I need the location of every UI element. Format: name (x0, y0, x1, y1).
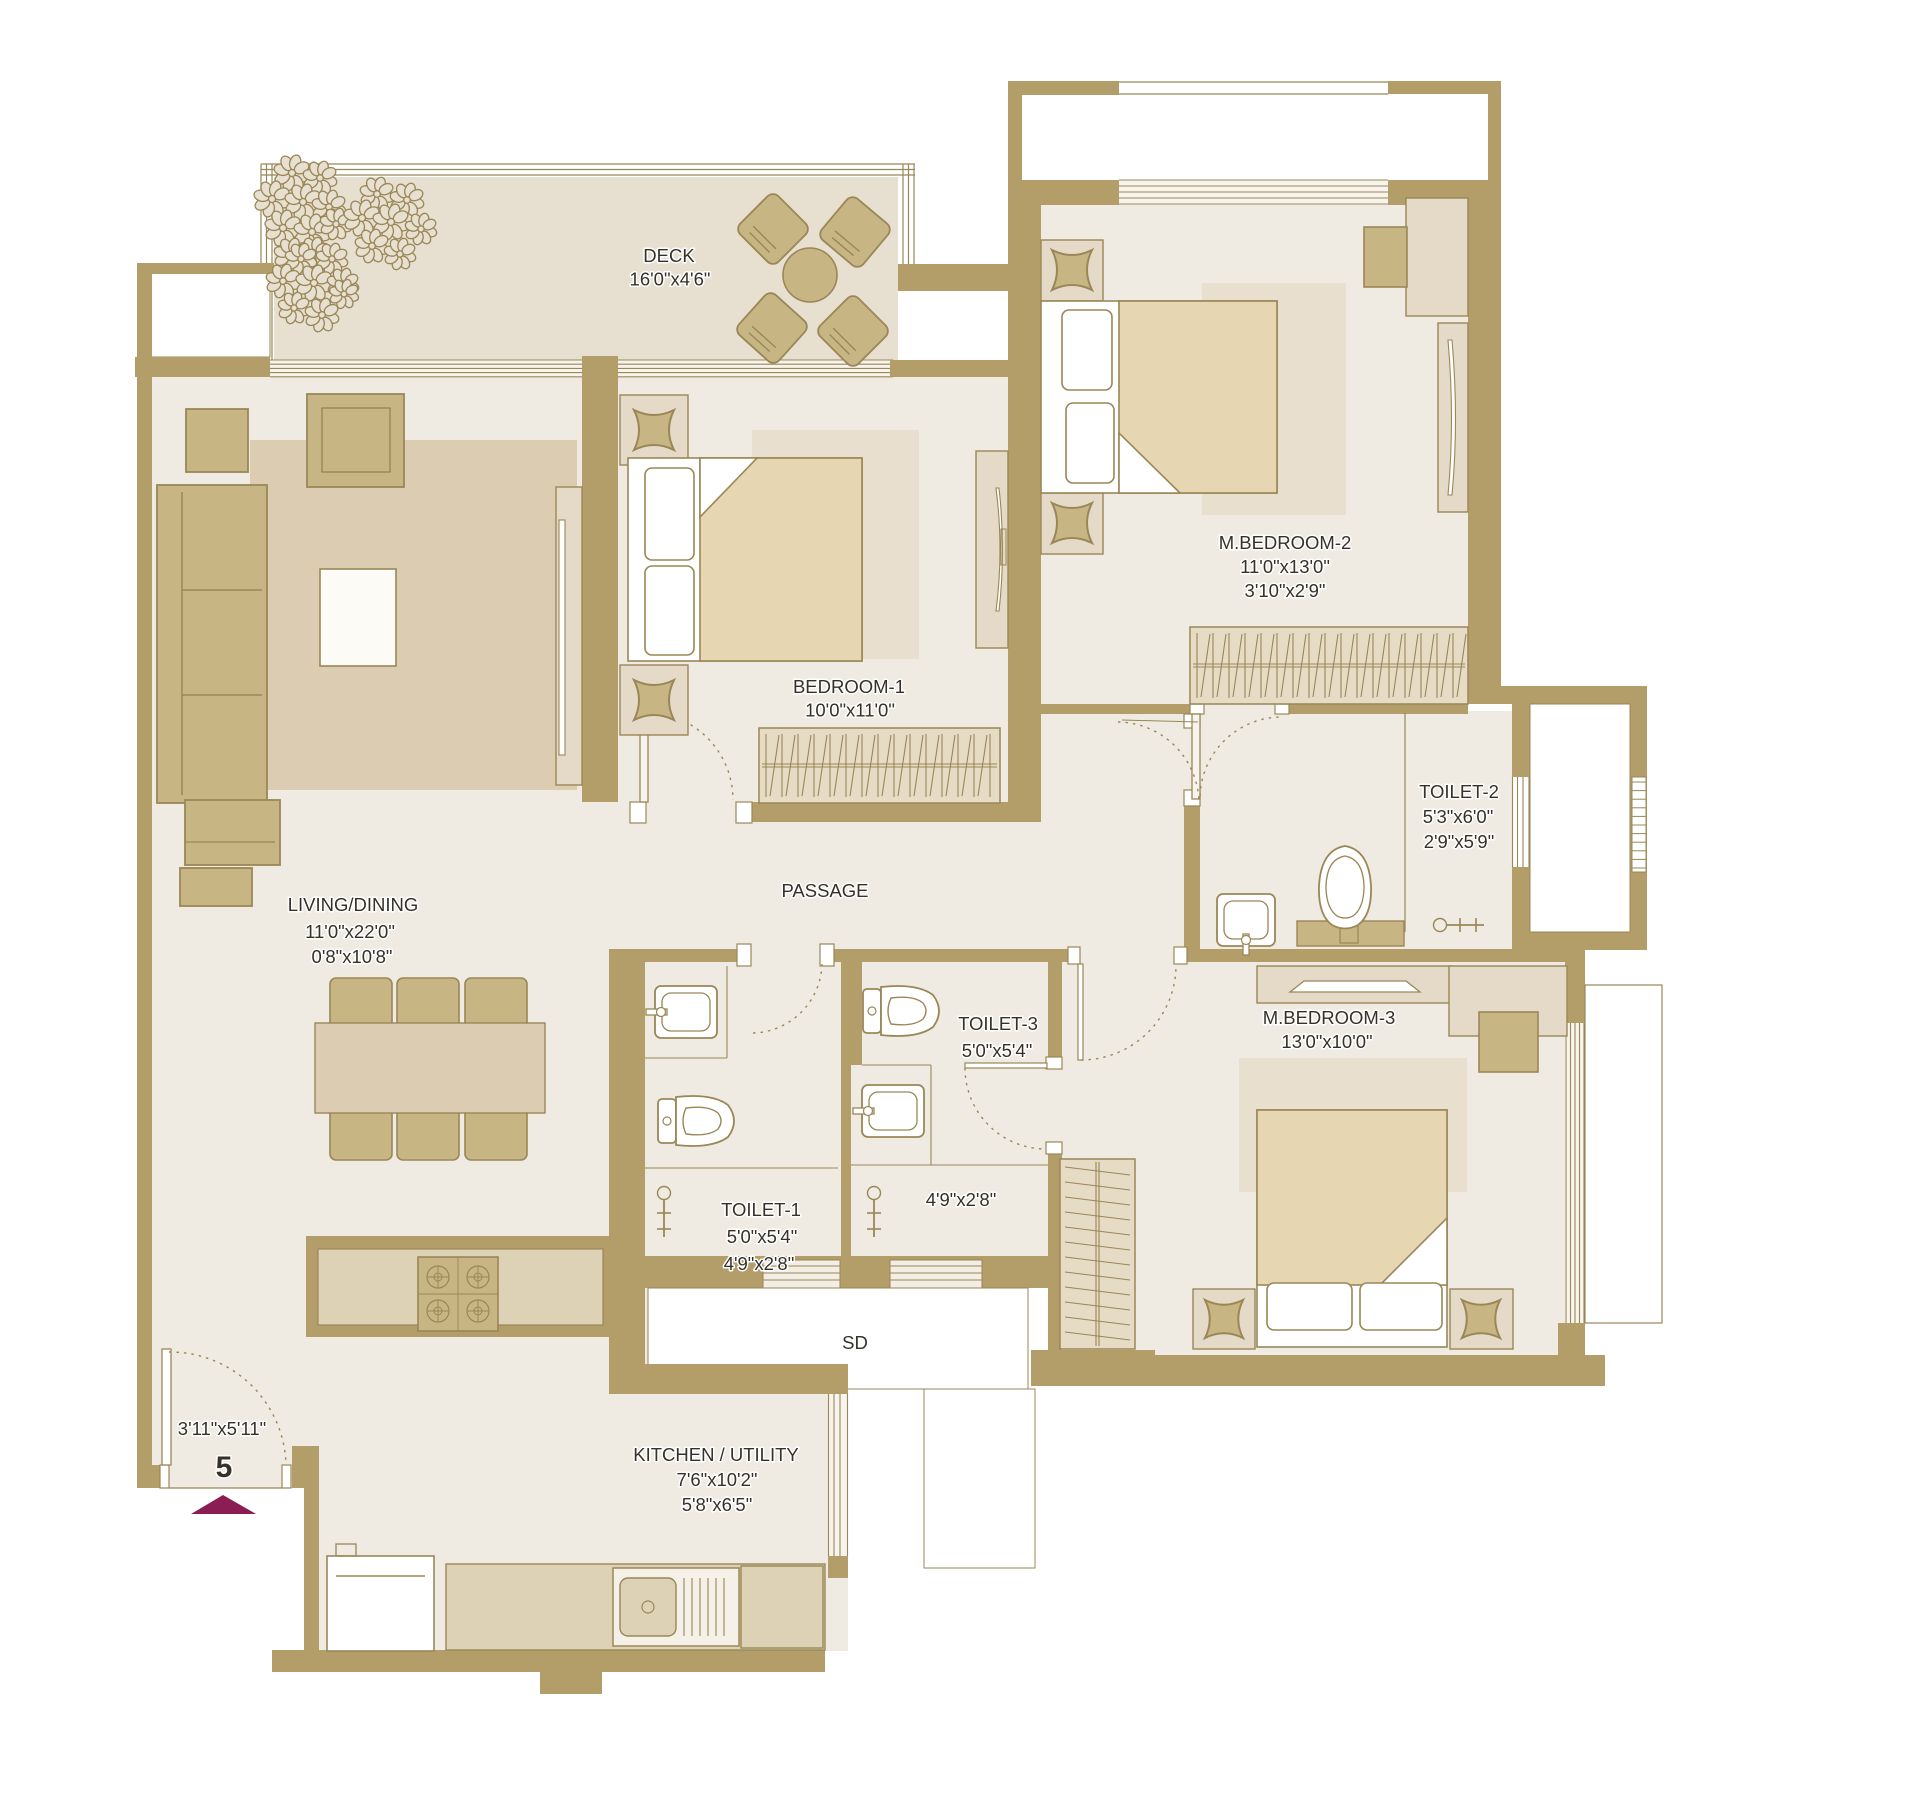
svg-text:13'0"x10'0": 13'0"x10'0" (1281, 1031, 1372, 1052)
svg-text:PASSAGE: PASSAGE (781, 880, 868, 901)
svg-text:2'9"x5'9": 2'9"x5'9" (1424, 831, 1495, 852)
svg-text:11'0"x22'0": 11'0"x22'0" (305, 921, 395, 942)
svg-text:4'9"x2'8": 4'9"x2'8" (926, 1189, 997, 1210)
svg-text:11'0"x13'0": 11'0"x13'0" (1240, 556, 1330, 577)
svg-text:BEDROOM-1: BEDROOM-1 (793, 676, 905, 697)
svg-text:16'0"x4'6": 16'0"x4'6" (630, 269, 711, 290)
svg-text:SD: SD (842, 1332, 868, 1353)
svg-text:0'8"x10'8": 0'8"x10'8" (312, 946, 393, 967)
svg-text:5'8"x6'5": 5'8"x6'5" (682, 1494, 753, 1515)
svg-text:LIVING/DINING: LIVING/DINING (288, 894, 419, 915)
svg-text:3'10"x2'9": 3'10"x2'9" (1245, 580, 1326, 601)
svg-text:10'0"x11'0": 10'0"x11'0" (805, 700, 895, 721)
svg-text:M.BEDROOM-3: M.BEDROOM-3 (1263, 1007, 1396, 1028)
svg-text:TOILET-3: TOILET-3 (958, 1013, 1038, 1034)
svg-text:5: 5 (216, 1451, 233, 1484)
svg-text:5'0"x5'4": 5'0"x5'4" (962, 1040, 1033, 1061)
svg-text:3'11"x5'11": 3'11"x5'11" (178, 1418, 266, 1439)
svg-text:5'0"x5'4": 5'0"x5'4" (727, 1226, 798, 1247)
svg-text:4'9"x2'8": 4'9"x2'8" (724, 1253, 795, 1274)
svg-text:M.BEDROOM-2: M.BEDROOM-2 (1219, 532, 1352, 553)
svg-text:TOILET-1: TOILET-1 (721, 1199, 801, 1220)
svg-text:7'6"x10'2": 7'6"x10'2" (677, 1469, 758, 1490)
svg-text:DECK: DECK (643, 245, 695, 266)
svg-text:5'3"x6'0": 5'3"x6'0" (1423, 806, 1494, 827)
svg-text:KITCHEN / UTILITY: KITCHEN / UTILITY (633, 1444, 799, 1465)
svg-text:TOILET-2: TOILET-2 (1419, 781, 1499, 802)
